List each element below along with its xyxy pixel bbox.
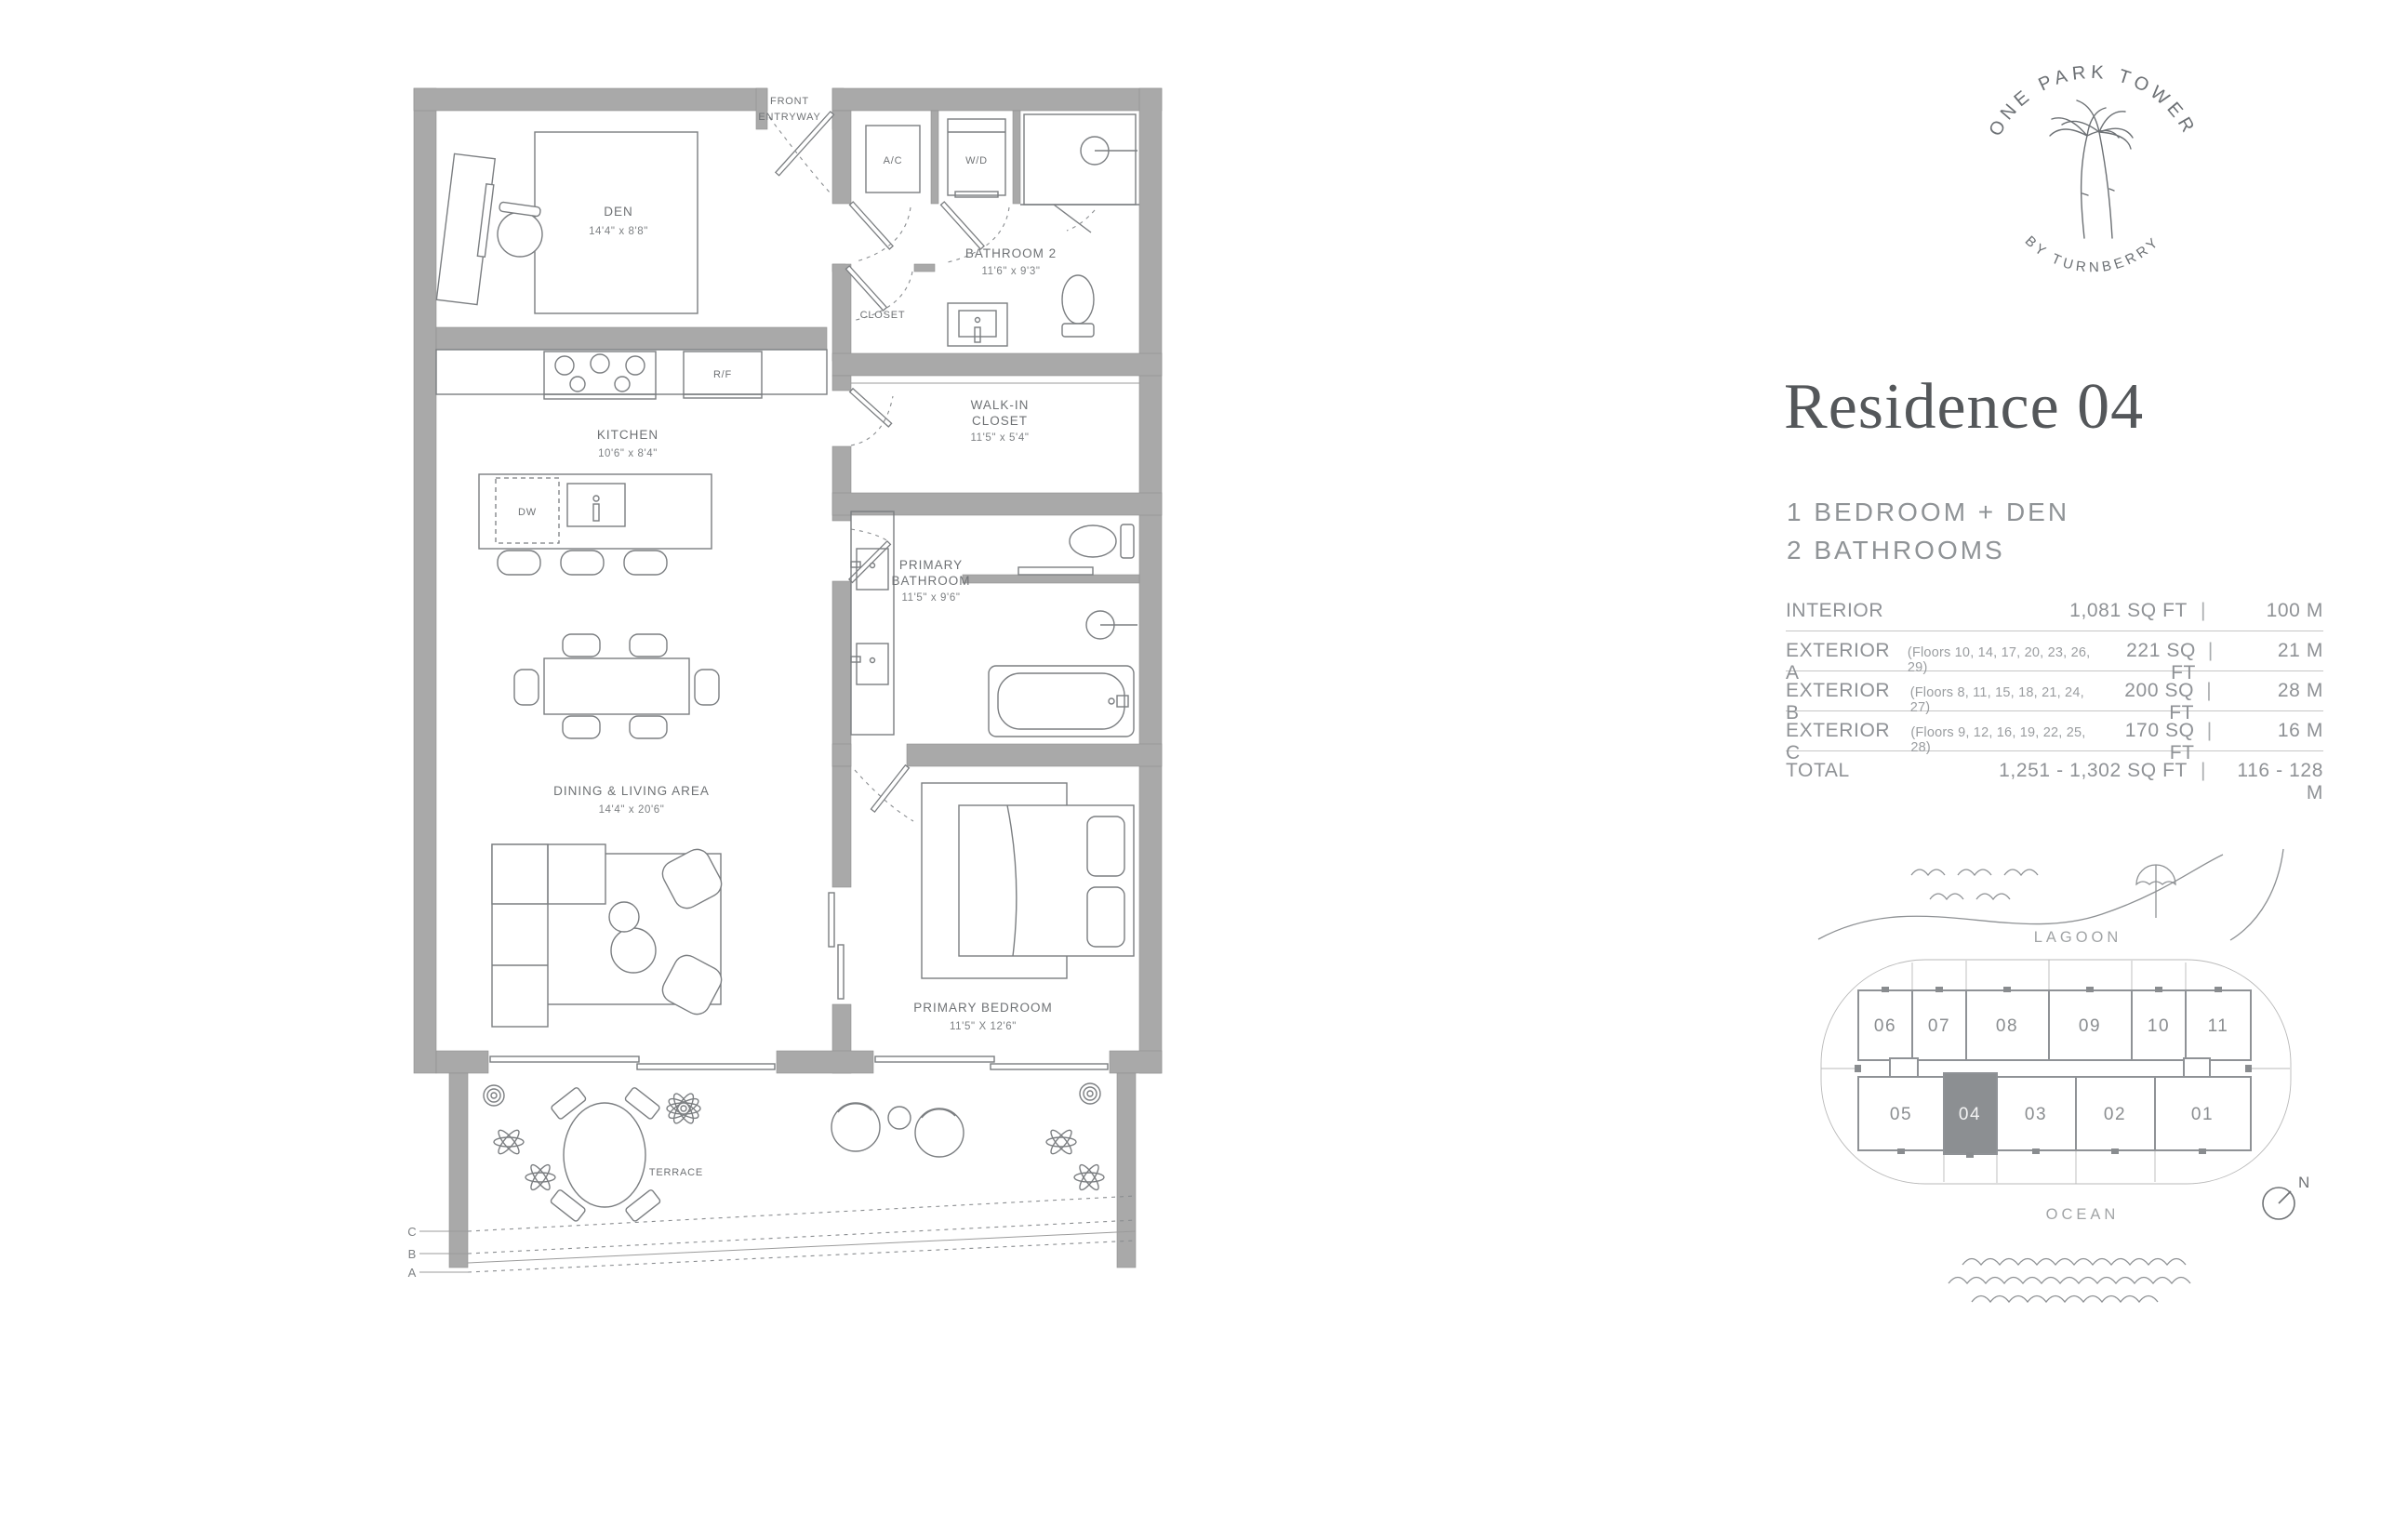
subtitle-line-2: 2 BATHROOMS [1787,531,2069,569]
unit-10: 10 [2148,1016,2170,1036]
room-den: DEN 14'4" x 8'8" [436,132,698,313]
row-m: 100 M [2219,600,2323,622]
subtitle-line-1: 1 BEDROOM + DEN [1787,493,2069,531]
room-walkin-closet: WALK-IN CLOSET 11'5" x 5'4" [851,383,1139,444]
row-label: EXTERIOR B [1786,680,1904,724]
kitchen-label: KITCHEN [597,428,658,442]
unit-row-top: 06 07 08 09 10 11 [1858,990,2251,1060]
desk-icon [436,153,497,304]
room-terrace: TERRACE [407,1083,1136,1280]
area-table: INTERIOR 1,081 SQ FT | 100 M EXTERIOR A … [1786,591,2323,791]
sofa-icon [492,844,605,1027]
closet-label: CLOSET [860,310,906,321]
dining-table-icon [514,634,719,738]
unit-11: 11 [2208,1016,2229,1036]
bar-stools-icon [498,551,667,575]
bedroom-dims: 11'5" X 12'6" [950,1021,1017,1032]
den-label: DEN [604,205,633,219]
row-label: TOTAL [1786,760,1850,782]
row-m: 21 M [2226,640,2323,662]
row-separator: | [2196,640,2226,662]
unit-02: 02 [2104,1105,2126,1124]
primary-bath-label-1: PRIMARY [899,558,963,572]
kitchen-island-icon [479,474,712,549]
unit-row-bottom: 05 04 03 02 01 [1858,1073,2251,1154]
row-m: 116 - 128 M [2219,760,2323,804]
sink-icon [948,303,1007,346]
row-label: EXTERIOR C [1786,720,1904,764]
rf-label: R/F [713,369,732,380]
terrace-variant-lines: C B A [407,1196,1136,1280]
dining-label: DINING & LIVING AREA [553,784,710,798]
bathtub-icon [989,666,1134,737]
unit-01: 01 [2191,1105,2214,1124]
row-sqft: 1,081 SQ FT [2069,600,2188,622]
row-sqft: 170 SQ FT [2099,720,2194,764]
terrace-label: TERRACE [649,1167,703,1178]
bedroom-label: PRIMARY BEDROOM [913,1001,1053,1015]
primary-bath-label-2: BATHROOM [892,574,971,588]
unit-03: 03 [2025,1105,2047,1124]
room-dining-living: DINING & LIVING AREA 14'4" x 20'6" [492,634,726,1027]
floorplan: DEN 14'4" x 8'8" R/F KITCHEN 10'6" x 8'4… [405,74,1177,1339]
row-sqft: 221 SQ FT [2102,640,2196,684]
table-row-exterior-a: EXTERIOR A (Floors 10, 14, 17, 20, 23, 2… [1786,631,2323,671]
marker-b: B [408,1247,417,1261]
brand-logo: ONE PARK TOWER BY TURNBERRY [1939,17,2246,296]
bathroom2-label: BATHROOM 2 [965,246,1057,260]
logo-bottom-text: BY TURNBERRY [2022,233,2163,276]
front-entryway: FRONT ENTRYWAY [758,96,820,123]
row-label: EXTERIOR A [1786,640,1901,684]
ocean-label: OCEAN [2046,1206,2120,1223]
armchair-icon [658,844,725,1018]
shower-icon [1081,137,1137,165]
residence-subtitle: 1 BEDROOM + DEN 2 BATHROOMS [1787,493,2069,569]
walkin-dims: 11'5" x 5'4" [970,432,1029,444]
shower-icon [1086,611,1137,639]
dining-dims: 14'4" x 20'6" [599,804,665,816]
kitchen-dims: 10'6" x 8'4" [598,448,658,459]
office-chair-icon [498,202,542,257]
toilet-icon [1070,524,1134,558]
row-sqft: 200 SQ FT [2098,680,2194,724]
lagoon-label: LAGOON [2034,929,2122,946]
walkin-label-1: WALK-IN [971,398,1030,412]
row-note: (Floors 8, 11, 15, 18, 21, 24, 27) [1910,685,2099,715]
north-arrow-icon: N [2263,1174,2309,1219]
unit-08: 08 [1996,1016,2018,1036]
row-separator: | [2194,680,2224,702]
row-note: (Floors 10, 14, 17, 20, 23, 26, 29) [1908,645,2102,675]
room-bathroom2: BATHROOM 2 11'6" x 9'3" [948,114,1137,346]
bathroom2-dims: 11'6" x 9'3" [981,266,1040,277]
row-note: (Floors 9, 12, 16, 19, 22, 25, 28) [1910,725,2099,755]
plant-icon [484,1085,555,1192]
primary-bath-dims: 11'5" x 9'6" [901,592,960,604]
page-title: Residence 04 [1784,370,2342,445]
building-keyplan: LAGOON 06 07 08 09 [1814,842,2339,1321]
lounge-chairs-icon [831,1103,964,1157]
unit-09: 09 [2079,1016,2101,1036]
north-label: N [2298,1174,2309,1191]
terrace-table-icon [550,1087,660,1223]
row-separator: | [2188,600,2219,622]
row-separator: | [2195,720,2225,742]
coffee-table-icon [609,902,656,973]
unit-05: 05 [1890,1105,1912,1124]
row-sqft: 1,251 - 1,302 SQ FT [1999,760,2188,782]
row-m: 28 M [2224,680,2323,702]
den-dims: 14'4" x 8'8" [589,226,648,237]
entry-label-1: FRONT [770,96,809,107]
marker-c: C [407,1225,416,1239]
plant-icon [1046,1083,1104,1192]
row-m: 16 M [2225,720,2323,742]
walkin-label-2: CLOSET [972,414,1028,428]
entry-label-2: ENTRYWAY [758,112,820,123]
table-row-interior: INTERIOR 1,081 SQ FT | 100 M [1786,591,2323,631]
palm-trees-icon [2050,100,2133,238]
bed-icon [959,805,1134,956]
toilet-icon [1062,275,1094,337]
room-primary-bedroom: PRIMARY BEDROOM 11'5" X 12'6" [913,783,1134,1032]
marker-a: A [408,1266,417,1280]
unit-07: 07 [1928,1016,1950,1036]
flower-plant-icon [666,1091,700,1125]
ac-label: A/C [884,155,903,166]
room-kitchen: R/F KITCHEN 10'6" x 8'4" DW [436,350,827,575]
row-separator: | [2188,760,2219,782]
lagoon-waves-icon [1818,849,2283,940]
unit-06: 06 [1874,1016,1896,1036]
page: DEN 14'4" x 8'8" R/F KITCHEN 10'6" x 8'4… [0,0,2381,1540]
umbrella-icon [2136,865,2175,918]
wd-label: W/D [965,155,988,166]
stove-icon [544,352,656,399]
row-label: INTERIOR [1786,600,1883,622]
unit-04: 04 [1959,1105,1981,1124]
dw-label: DW [518,507,537,518]
room-primary-bathroom: PRIMARY BATHROOM 11'5" x 9'6" [851,511,1137,737]
ocean-waves-icon [1949,1259,2190,1303]
